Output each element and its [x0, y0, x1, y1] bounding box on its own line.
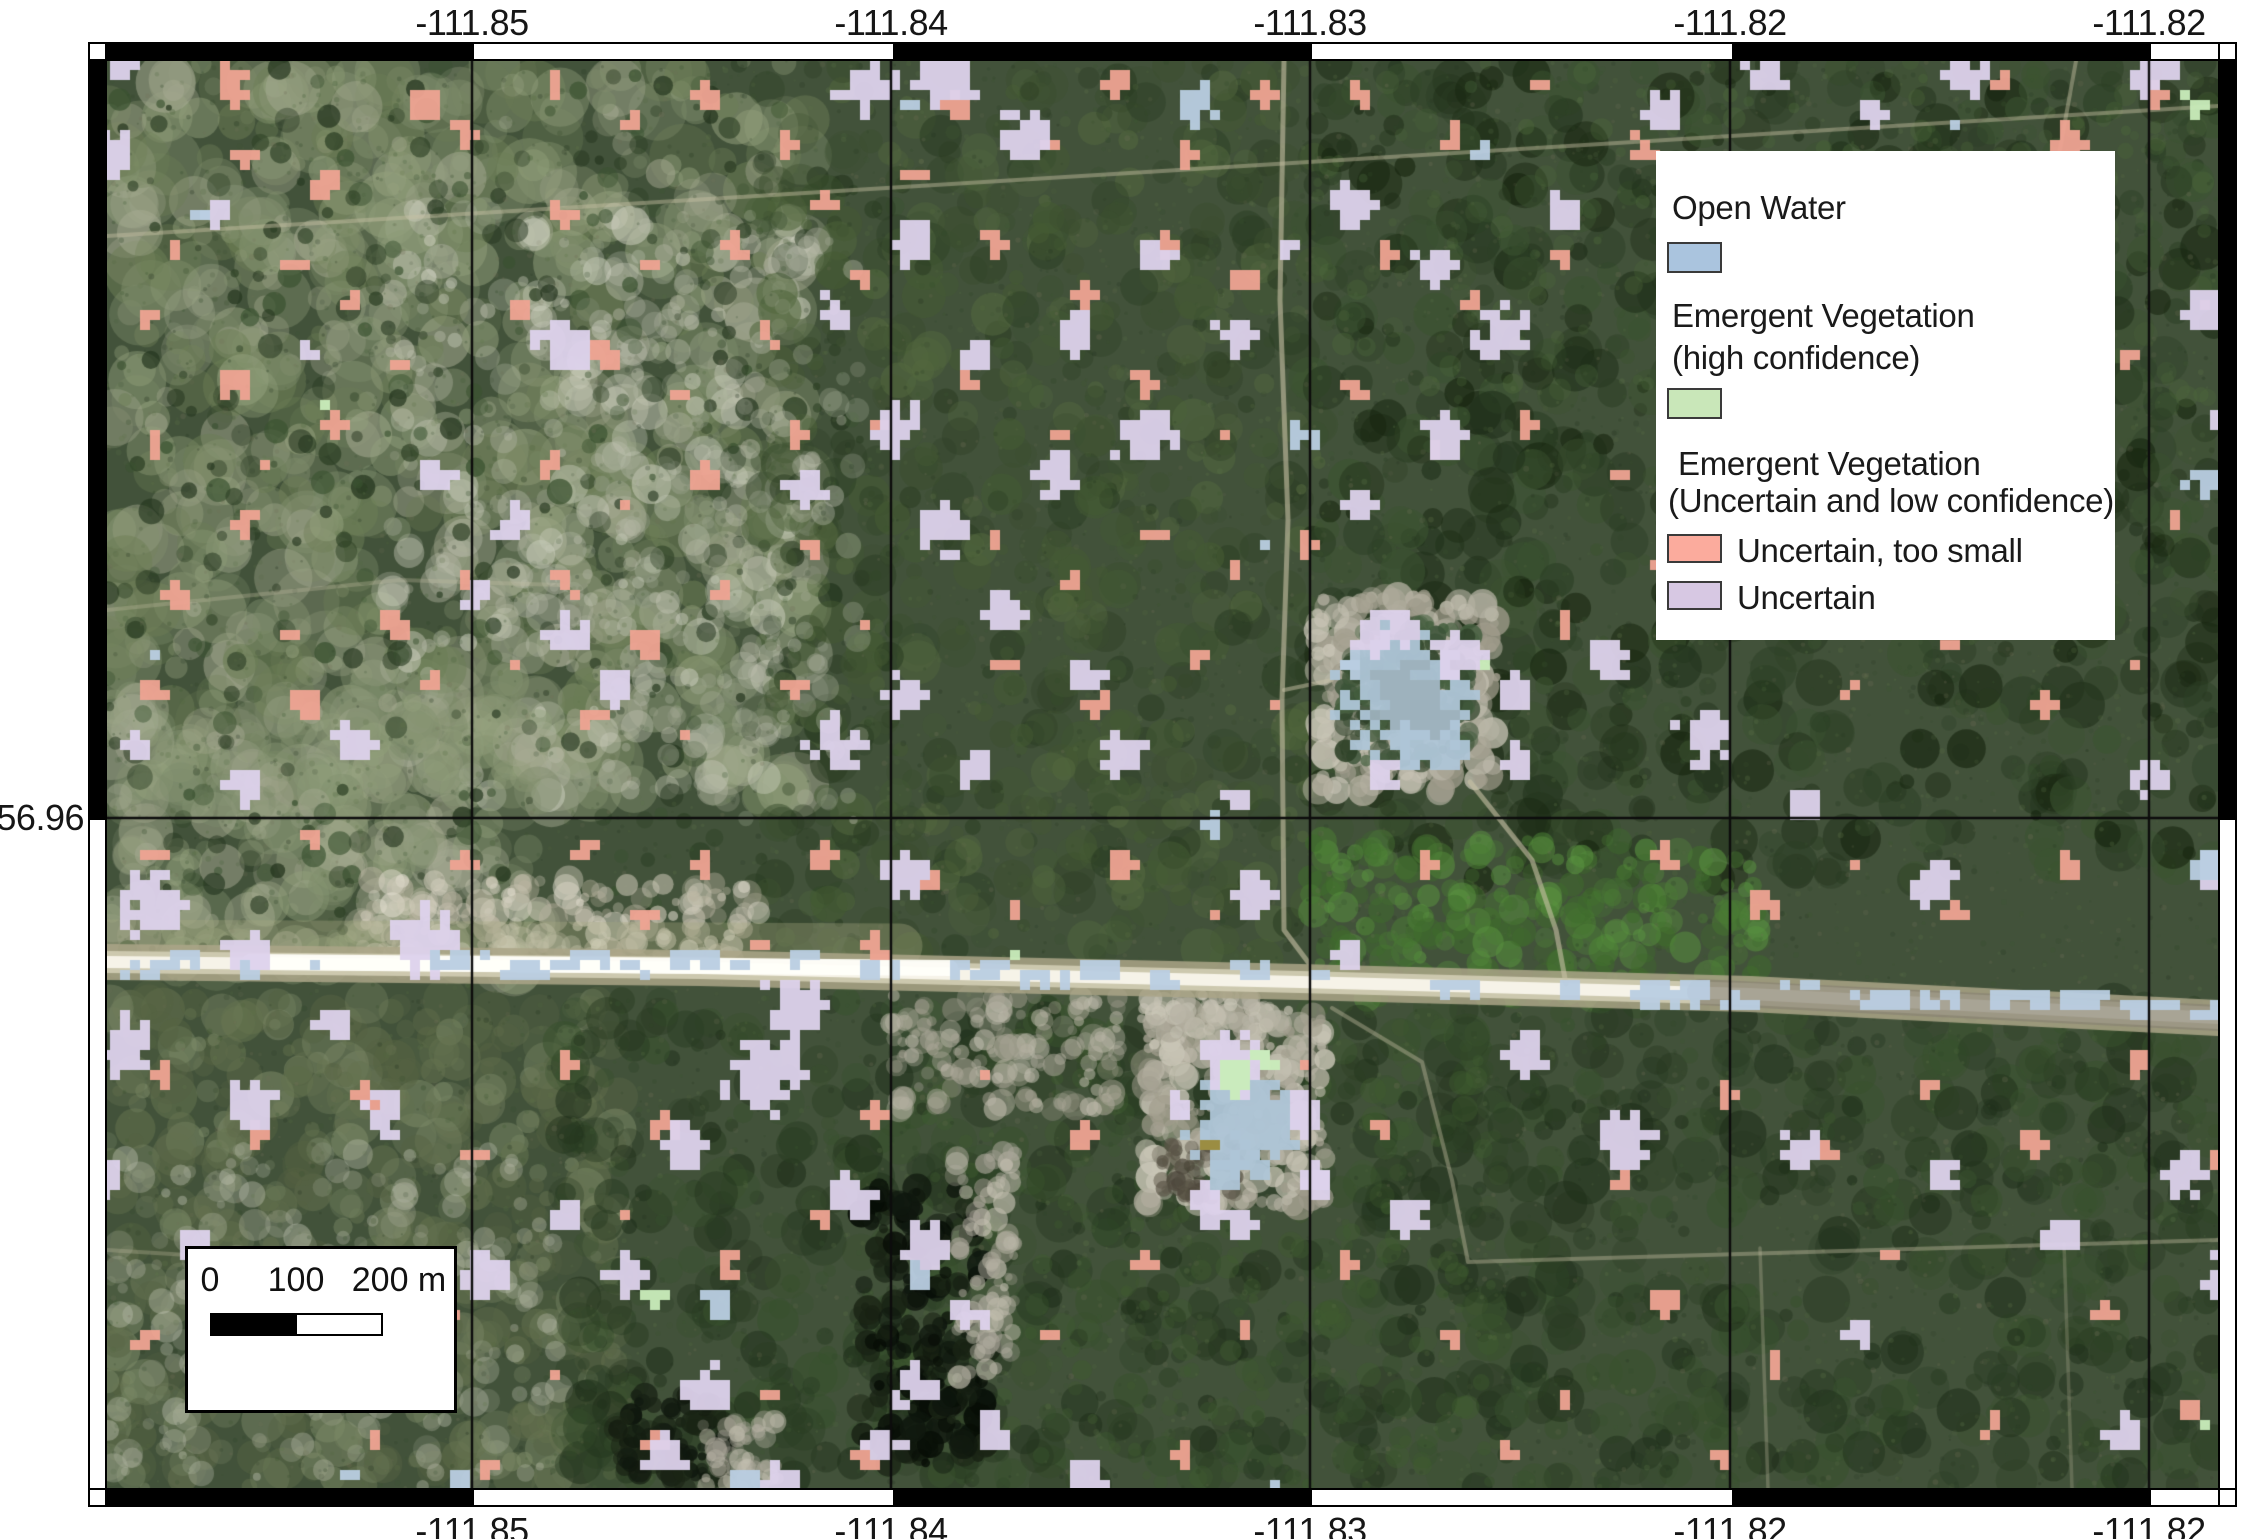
lon-tick-label: -111.84 — [834, 2, 947, 44]
frame-corner-tl — [88, 42, 107, 61]
frame-right — [2218, 61, 2237, 1488]
frame-segment-white — [1312, 1490, 1732, 1505]
scale-bar-label-200m: 200 m — [352, 1261, 447, 1300]
frame-corner-bl — [88, 1488, 107, 1507]
legend-uncertain-swatch — [1667, 581, 1722, 610]
frame-segment-white — [474, 1490, 893, 1505]
lon-tick-label: -111.83 — [1253, 2, 1366, 44]
frame-corner-tr — [2218, 42, 2237, 61]
scale-bar: 0 100 200 m — [185, 1246, 457, 1413]
lon-tick-label: -111.85 — [415, 1510, 528, 1539]
lon-tick-label: -111.84 — [834, 1510, 947, 1539]
scale-bar-rule — [210, 1313, 383, 1336]
legend-ev-uncertain-heading-1: Emergent Vegetation — [1678, 445, 1981, 483]
legend-ev-high-label-1: Emergent Vegetation — [1672, 297, 1975, 335]
scale-bar-black-half — [212, 1315, 297, 1334]
frame-segment-white — [2151, 1490, 2220, 1505]
frame-segment-white — [1312, 44, 1732, 59]
lat-tick-label: 56.96 — [0, 797, 84, 839]
legend-open-water-swatch — [1667, 242, 1722, 273]
lon-tick-label: -111.85 — [415, 2, 528, 44]
lon-tick-label: -111.82 — [1673, 1510, 1786, 1539]
lon-tick-label: -111.82 — [2092, 1510, 2205, 1539]
legend-uncertain-label: Uncertain — [1737, 579, 1876, 617]
legend-open-water-label: Open Water — [1672, 189, 1846, 227]
lon-tick-label: -111.82 — [2092, 2, 2205, 44]
frame-corner-br — [2218, 1488, 2237, 1507]
frame-left — [88, 61, 107, 1488]
legend: Open Water Emergent Vegetation (high con… — [1656, 151, 2115, 640]
scale-bar-label-0: 0 — [201, 1261, 220, 1300]
frame-top — [107, 42, 2218, 61]
lon-tick-label: -111.82 — [1673, 2, 1786, 44]
legend-ev-uncertain-heading-2: (Uncertain and low confidence) — [1668, 482, 2114, 520]
map-figure: -111.85-111.84-111.83-111.82-111.82 -111… — [0, 0, 2253, 1539]
frame-segment-white — [474, 44, 893, 59]
frame-segment-white — [90, 820, 105, 1490]
lon-tick-label: -111.83 — [1253, 1510, 1366, 1539]
legend-uncertain-small-swatch — [1667, 534, 1722, 563]
legend-uncertain-small-label: Uncertain, too small — [1737, 532, 2023, 570]
legend-ev-high-label-2: (high confidence) — [1672, 339, 1920, 377]
frame-bottom — [107, 1488, 2218, 1507]
frame-segment-white — [2151, 44, 2220, 59]
legend-ev-high-swatch — [1667, 388, 1722, 419]
scale-bar-label-100: 100 — [268, 1261, 325, 1300]
frame-segment-white — [2220, 820, 2235, 1490]
